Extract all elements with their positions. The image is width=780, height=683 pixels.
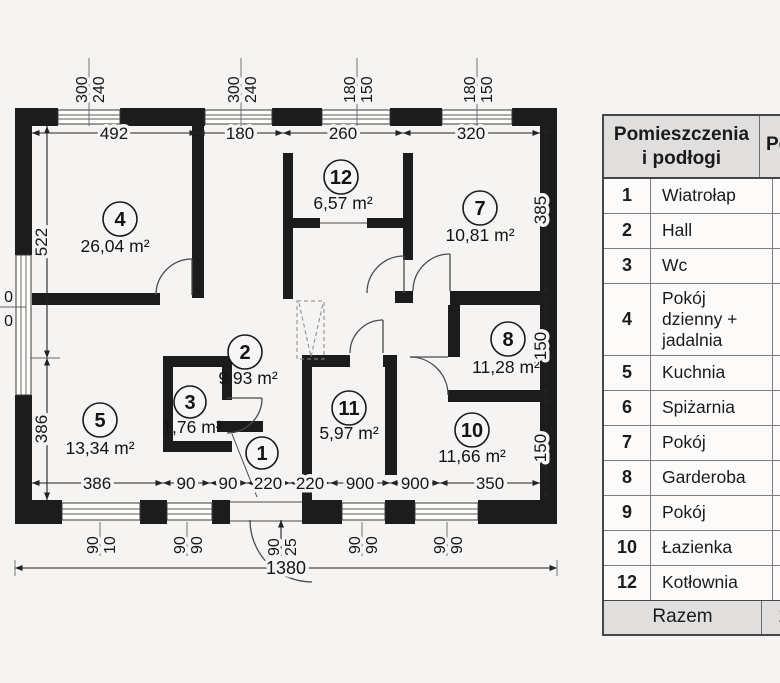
win-bot3-h: 90 — [364, 536, 381, 554]
row-name: Wiatrołap — [651, 179, 773, 213]
room-8: 8 11,28 m² — [472, 322, 540, 377]
win-top3-h: 150 — [359, 76, 376, 103]
dim-total: 1380 — [266, 558, 306, 578]
entry-door-h: 25 — [283, 538, 300, 556]
row-number: 2 — [604, 214, 651, 248]
row-value — [773, 214, 780, 248]
win-left-w-fragment: 0 — [4, 289, 13, 306]
win-top4-w: 180 — [462, 76, 479, 103]
row-number: 8 — [604, 461, 651, 495]
window-bottom-4 — [415, 503, 478, 520]
room-8-area: 11,28 m² — [472, 357, 540, 377]
table-header: Pomieszczenia i podłogi Po — [604, 116, 780, 179]
dim-bottom-5: 220 — [296, 474, 324, 493]
row-name: Pokój dzienny + jadalnia — [651, 284, 773, 355]
table-title-line1: Pomieszczenia — [604, 123, 759, 147]
room-1-number: 1 — [256, 443, 267, 465]
room-2-number: 2 — [239, 342, 250, 364]
room-7-area: 10,81 m² — [445, 225, 514, 245]
room-5-area: 13,34 m² — [65, 438, 134, 458]
row-name: Pokój — [651, 496, 773, 530]
dim-bottom-3: 90 — [219, 474, 238, 493]
room-7: 7 10,81 m² — [445, 191, 514, 245]
dim-bottom-2: 90 — [177, 474, 196, 493]
win-bot2-h: 90 — [189, 536, 206, 554]
table-row: 1 Wiatrołap — [604, 179, 780, 214]
row-value — [773, 179, 780, 213]
row-number: 12 — [604, 566, 651, 600]
wardrobe-symbol — [297, 301, 324, 359]
win-top3-w: 180 — [342, 76, 359, 103]
dim-bottom-7: 900 — [401, 474, 429, 493]
room-4: 4 26,04 m² — [80, 202, 149, 256]
room-10: 10 11,66 m² — [438, 413, 506, 466]
win-top1-w: 300 — [74, 76, 91, 103]
row-name: Spiżarnia — [651, 391, 773, 425]
total-value-partial: 1 — [762, 601, 780, 634]
room-12: 12 6,57 m² — [313, 160, 372, 213]
win-left-h-fragment: 0 — [4, 313, 13, 330]
row-name: Kotłownia — [651, 566, 773, 600]
room-10-area: 11,66 m² — [438, 446, 506, 466]
room-11-area: 5,97 m² — [319, 423, 378, 443]
dim-right-2: 150 — [531, 332, 550, 360]
table-area-column-header: Po — [760, 116, 780, 177]
win-top4-h: 150 — [479, 76, 496, 103]
win-bot3-w: 90 — [347, 536, 364, 554]
dim-left-2: 386 — [32, 415, 51, 443]
row-name: Kuchnia — [651, 356, 773, 390]
win-bot4-w: 90 — [432, 536, 449, 554]
row-name: Łazienka — [651, 531, 773, 565]
dim-top-3: 260 — [329, 124, 357, 143]
room-3-area: 1,76 m² — [162, 417, 221, 437]
dim-right-1: 385 — [531, 196, 550, 224]
row-number: 1 — [604, 179, 651, 213]
dim-bottom-8: 350 — [476, 474, 504, 493]
row-value — [773, 249, 780, 283]
win-top2-w: 300 — [226, 76, 243, 103]
dim-bottom-1: 386 — [83, 474, 111, 493]
dim-top-4: 320 — [457, 124, 485, 143]
row-number: 6 — [604, 391, 651, 425]
rooms-table: Pomieszczenia i podłogi Po 1 Wiatrołap 2… — [602, 114, 780, 636]
table-row: 5 Kuchnia — [604, 356, 780, 391]
room-7-number: 7 — [474, 198, 485, 220]
row-value — [773, 284, 780, 355]
dim-right-3: 150 — [531, 434, 550, 462]
room-11-number: 11 — [338, 398, 359, 420]
room-4-area: 26,04 m² — [80, 236, 149, 256]
table-row: 12 Kotłownia — [604, 566, 780, 600]
row-value — [773, 461, 780, 495]
win-bot4-h: 90 — [449, 536, 466, 554]
room-10-number: 10 — [461, 420, 483, 442]
window-bottom-1 — [62, 503, 140, 520]
door-hall — [367, 256, 404, 293]
table-row: 6 Spiżarnia — [604, 391, 780, 426]
win-bot1-w: 90 — [85, 536, 102, 554]
room-4-number: 4 — [114, 209, 126, 231]
room-12-number: 12 — [330, 167, 352, 189]
win-top2-h: 240 — [243, 76, 260, 103]
window-top-3 — [322, 110, 390, 124]
dim-total-width: 1380 — [15, 558, 557, 578]
win-bot2-w: 90 — [172, 536, 189, 554]
dim-bottom-chain: 386 90 90 220 220 900 900 350 — [32, 474, 540, 493]
dim-bottom-6: 900 — [346, 474, 374, 493]
entry-door-w: 90 — [266, 538, 283, 556]
room-3-number: 3 — [184, 392, 195, 414]
room-5: 5 13,34 m² — [65, 403, 134, 458]
door-room8 — [410, 357, 448, 395]
dim-top-2: 180 — [226, 124, 254, 143]
row-name: Pokój — [651, 426, 773, 460]
row-name: Wc — [651, 249, 773, 283]
win-bot1-h: 10 — [102, 536, 119, 554]
table-row: 4 Pokój dzienny + jadalnia — [604, 284, 780, 356]
table-title-line2: i podłogi — [604, 147, 759, 171]
dim-left-1: 522 — [32, 228, 51, 256]
table-row: 3 Wc — [604, 249, 780, 284]
row-value — [773, 566, 780, 600]
row-number: 10 — [604, 531, 651, 565]
dim-bottom-4: 220 — [254, 474, 282, 493]
window-bottom-2 — [167, 503, 212, 520]
dim-top-1: 492 — [100, 124, 128, 143]
door-room4 — [156, 259, 192, 295]
room-1: 1 — [246, 437, 278, 469]
dim-top: 492 180 260 320 — [32, 124, 540, 143]
row-number: 4 — [604, 284, 651, 355]
row-number: 7 — [604, 426, 651, 460]
table-row: 8 Garderoba — [604, 461, 780, 496]
window-top-2 — [205, 110, 272, 124]
table-row: 10 Łazienka — [604, 531, 780, 566]
table-row: 7 Pokój — [604, 426, 780, 461]
dim-left: 522 386 — [30, 126, 60, 500]
floor-plan: 4 26,04 m² 12 6,57 m² 7 10,81 m² 8 11,28… — [0, 0, 600, 683]
table-title: Pomieszczenia i podłogi — [604, 116, 760, 177]
row-number: 5 — [604, 356, 651, 390]
room-8-number: 8 — [502, 329, 513, 351]
row-value — [773, 391, 780, 425]
door-room7 — [413, 254, 450, 291]
row-number: 3 — [604, 249, 651, 283]
row-value — [773, 531, 780, 565]
room-5-number: 5 — [94, 410, 105, 432]
row-number: 9 — [604, 496, 651, 530]
room-11: 11 5,97 m² — [319, 391, 378, 443]
door-room11 — [350, 320, 383, 353]
row-value — [773, 496, 780, 530]
room-12-area: 6,57 m² — [313, 193, 372, 213]
row-value — [773, 356, 780, 390]
row-name: Hall — [651, 214, 773, 248]
room-2-area: 9,93 m² — [218, 368, 277, 388]
window-left — [16, 255, 31, 395]
win-top1-h: 240 — [91, 76, 108, 103]
row-name: Garderoba — [651, 461, 773, 495]
window-bottom-3 — [342, 503, 385, 520]
table-row: 9 Pokój — [604, 496, 780, 531]
total-label: Razem — [604, 601, 762, 634]
table-footer: Razem 1 — [604, 600, 780, 634]
table-row: 2 Hall — [604, 214, 780, 249]
row-value — [773, 426, 780, 460]
